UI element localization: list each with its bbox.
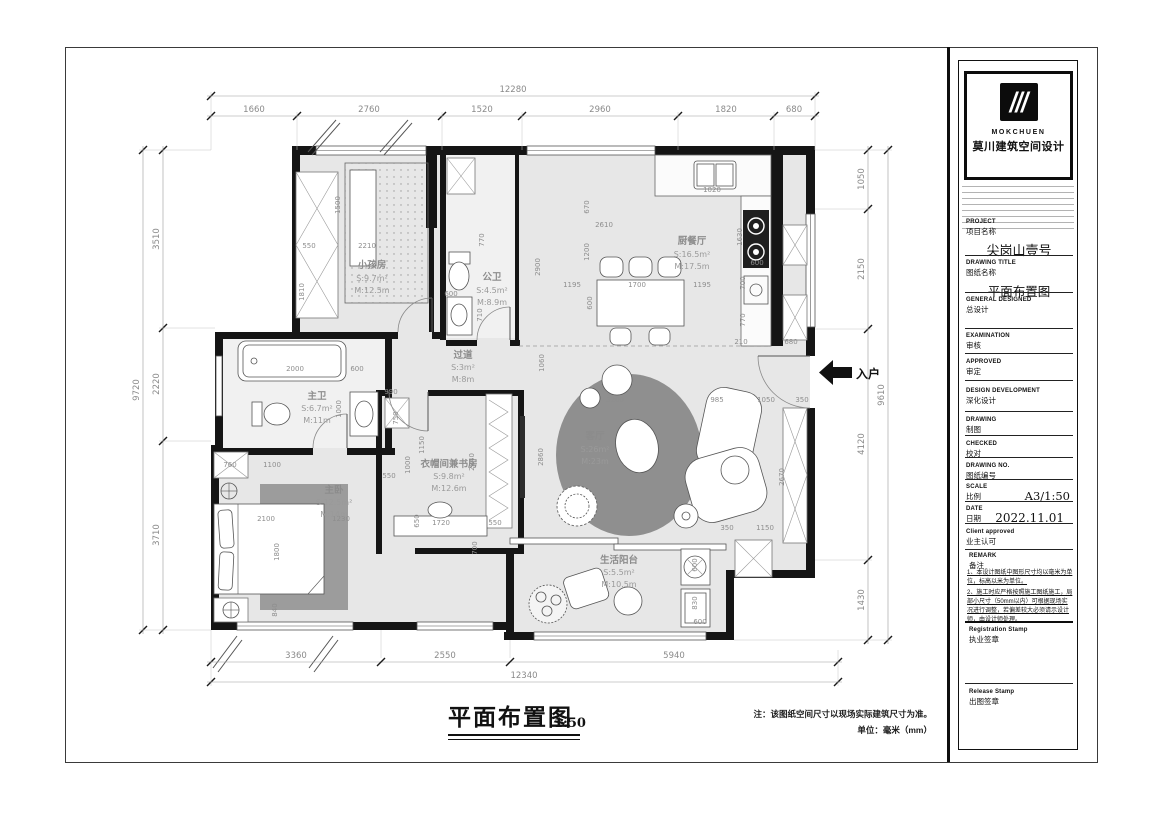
field-client-approved: Client approved 业主认可 [966, 529, 1072, 547]
field-label-cn: 审定 [966, 366, 1072, 377]
field-label-en: Registration Stamp [969, 627, 1072, 633]
field-label-en: GENERAL DESIGNED [966, 297, 1072, 303]
field-drawing: DRAWING 制图 [966, 417, 1072, 435]
field-approved: APPROVED 审定 [966, 359, 1072, 377]
field-label-cn: 总设计 [966, 304, 1072, 315]
field-label-en: PROJECT [966, 219, 1072, 225]
field-design-development: DESIGN DEVELOPMENT 深化设计 [966, 388, 1072, 406]
note-text: 注：该图纸空间尺寸以现场实际建筑尺寸为准。 [640, 706, 932, 722]
titleblock-divider [947, 47, 950, 762]
field-label-en: APPROVED [966, 359, 1072, 365]
field-label-cn: 深化设计 [966, 395, 1072, 406]
unit-text: 单位：毫米（mm） [640, 722, 932, 738]
field-label-cn: 项目名称 [966, 226, 1072, 237]
field-examination: EXAMINATION 审核 [966, 333, 1072, 351]
field-label-en: DRAWING TITLE [966, 260, 1072, 266]
sheet-border [65, 47, 1098, 763]
field-drawing-title: DRAWING TITLE 图纸名称 平面布置图 [966, 260, 1072, 300]
field-label-en: Client approved [966, 529, 1072, 535]
title-underline [448, 734, 580, 740]
remark-note: 1、本设计图纸中图形尺寸均以毫米为单位，标高以米为单位。 [967, 569, 1073, 587]
field-general-designed: GENERAL DESIGNED 总设计 [966, 297, 1072, 315]
remark-note: 2、施工时应严格按照施工图纸施工，局部小尺寸（50mm以内）可根据现场实况进行调… [967, 589, 1073, 625]
field-date: DATE 日期 2022.11.01 [966, 506, 1072, 524]
field-label-cn: 制图 [966, 424, 1072, 435]
title-block: MOKCHUEN 莫川建筑空间设计 PROJECT 项目名称 尖岗山壹号 DRA… [958, 60, 1078, 750]
logo-text-cn: 莫川建筑空间设计 [967, 138, 1070, 154]
company-logo: MOKCHUEN 莫川建筑空间设计 [964, 71, 1073, 180]
field-scale: SCALE 比例 A3/1:50 [966, 484, 1072, 502]
footer-note: 注：该图纸空间尺寸以现场实际建筑尺寸为准。 单位：毫米（mm） [640, 706, 932, 738]
field-label-en: CHECKED [966, 441, 1072, 447]
logo-mark-icon [1000, 83, 1038, 121]
field-label-en: DRAWING [966, 417, 1072, 423]
field-value: 尖岗山壹号 [966, 240, 1072, 259]
remark-notes: 1、本设计图纸中图形尺寸均以毫米为单位，标高以米为单位。 2、施工时应严格按照施… [967, 569, 1073, 627]
field-label-en: EXAMINATION [966, 333, 1072, 339]
field-registration-stamp: Registration Stamp 执业签章 [969, 627, 1072, 645]
field-label-cn: 出图签章 [969, 696, 1072, 707]
field-label-cn: 图纸名称 [966, 267, 1072, 278]
field-label-cn: 业主认可 [966, 536, 1072, 547]
field-label-cn: 执业签章 [969, 634, 1072, 645]
logo-text-en: MOKCHUEN [967, 129, 1070, 136]
field-release-stamp: Release Stamp 出图签章 [969, 689, 1072, 707]
field-project: PROJECT 项目名称 尖岗山壹号 [966, 219, 1072, 259]
field-label-en: Release Stamp [969, 689, 1072, 695]
field-label-en: REMARK [969, 553, 1072, 559]
drawing-scale: 1:50 [554, 716, 586, 731]
field-label-en: DRAWING NO. [966, 463, 1072, 469]
field-label-cn: 审核 [966, 340, 1072, 351]
field-label-en: DESIGN DEVELOPMENT [966, 388, 1072, 394]
